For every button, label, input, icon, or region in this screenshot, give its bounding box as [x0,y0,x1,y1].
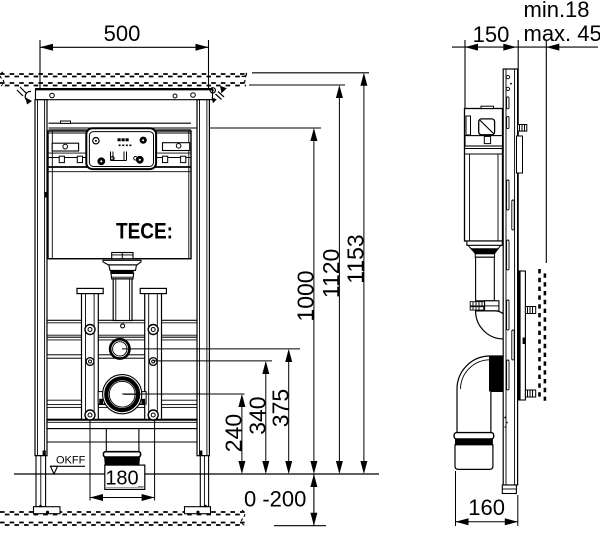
svg-text:180: 180 [105,468,138,490]
svg-text:150: 150 [473,22,510,47]
svg-text:OKFF: OKFF [56,455,86,467]
svg-text:1153: 1153 [343,234,369,283]
svg-text:min.18: min.18 [524,0,590,22]
svg-text:375: 375 [268,389,294,427]
svg-text:1000: 1000 [293,270,319,321]
svg-text:TECE:: TECE: [116,219,173,244]
svg-text:240: 240 [221,414,247,452]
svg-text:0 -200: 0 -200 [244,487,306,512]
svg-text:160: 160 [468,495,505,520]
svg-text:1120: 1120 [318,249,344,298]
svg-text:500: 500 [104,21,141,46]
svg-text:max. 45: max. 45 [524,21,600,46]
